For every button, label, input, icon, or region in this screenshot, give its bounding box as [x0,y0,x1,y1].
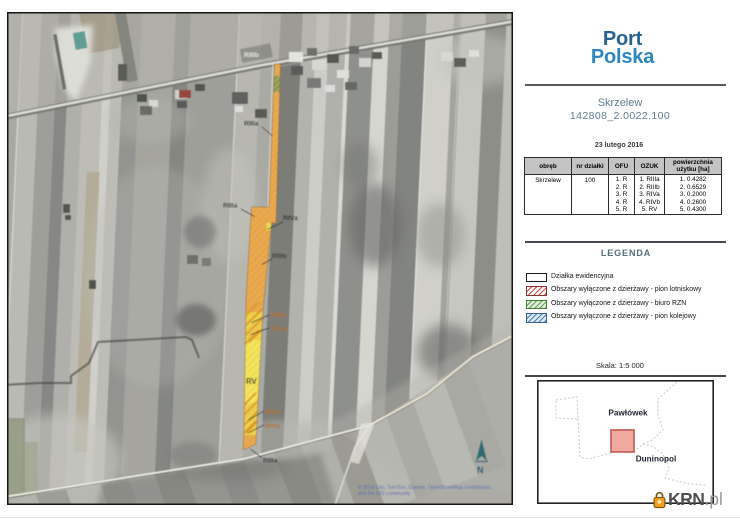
svg-text:RIIIa: RIIIa [223,203,238,210]
svg-text:Duninopol: Duninopol [636,455,676,464]
svg-text:RIVb: RIVb [265,409,280,416]
svg-text:RV: RV [246,377,257,386]
svg-text:RIIIb: RIIIb [272,253,287,260]
svg-text:© 2016 Esri, TomTom, Garmin, O: © 2016 Esri, TomTom, Garmin, OpenStreetM… [358,484,492,491]
svg-text:RIIIa: RIIIa [263,458,278,465]
svg-text:Pawłówek: Pawłówek [608,409,648,418]
svg-text:RIVa: RIVa [265,423,280,430]
svg-text:RIVb: RIVb [271,326,286,333]
svg-text:RIVa: RIVa [271,312,286,319]
svg-text:and the GIS community: and the GIS community [358,491,411,497]
svg-text:N: N [477,465,484,475]
svg-text:RIVa: RIVa [283,215,298,222]
svg-text:RIIIb: RIIIb [244,52,259,59]
svg-text:RIIIa: RIIIa [244,121,259,128]
